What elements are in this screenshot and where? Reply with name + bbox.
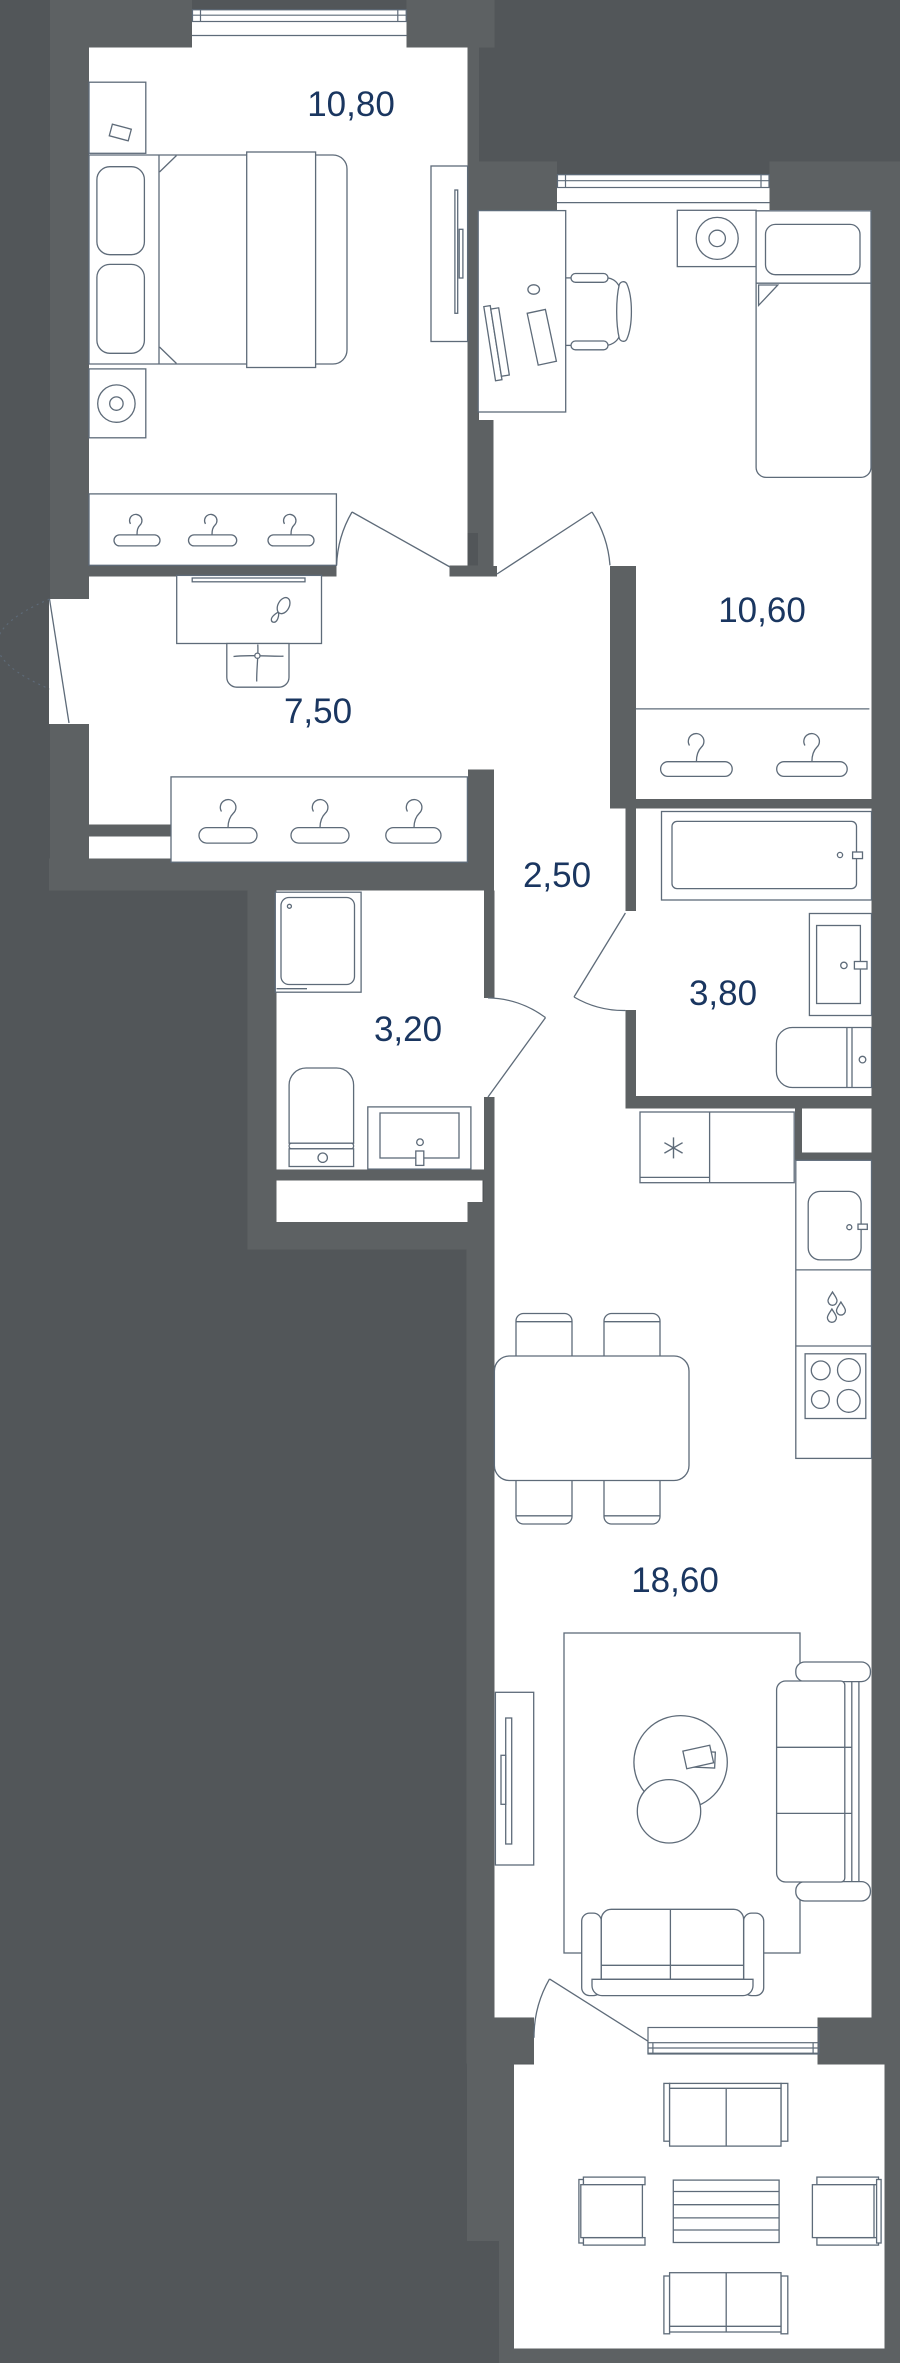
- svg-text:3,20: 3,20: [374, 1010, 442, 1049]
- svg-text:10,60: 10,60: [718, 591, 806, 630]
- svg-text:18,60: 18,60: [631, 1561, 719, 1600]
- svg-text:10,80: 10,80: [307, 85, 395, 124]
- svg-text:3,80: 3,80: [689, 974, 757, 1013]
- svg-text:2,50: 2,50: [523, 856, 591, 895]
- svg-text:7,50: 7,50: [284, 692, 352, 731]
